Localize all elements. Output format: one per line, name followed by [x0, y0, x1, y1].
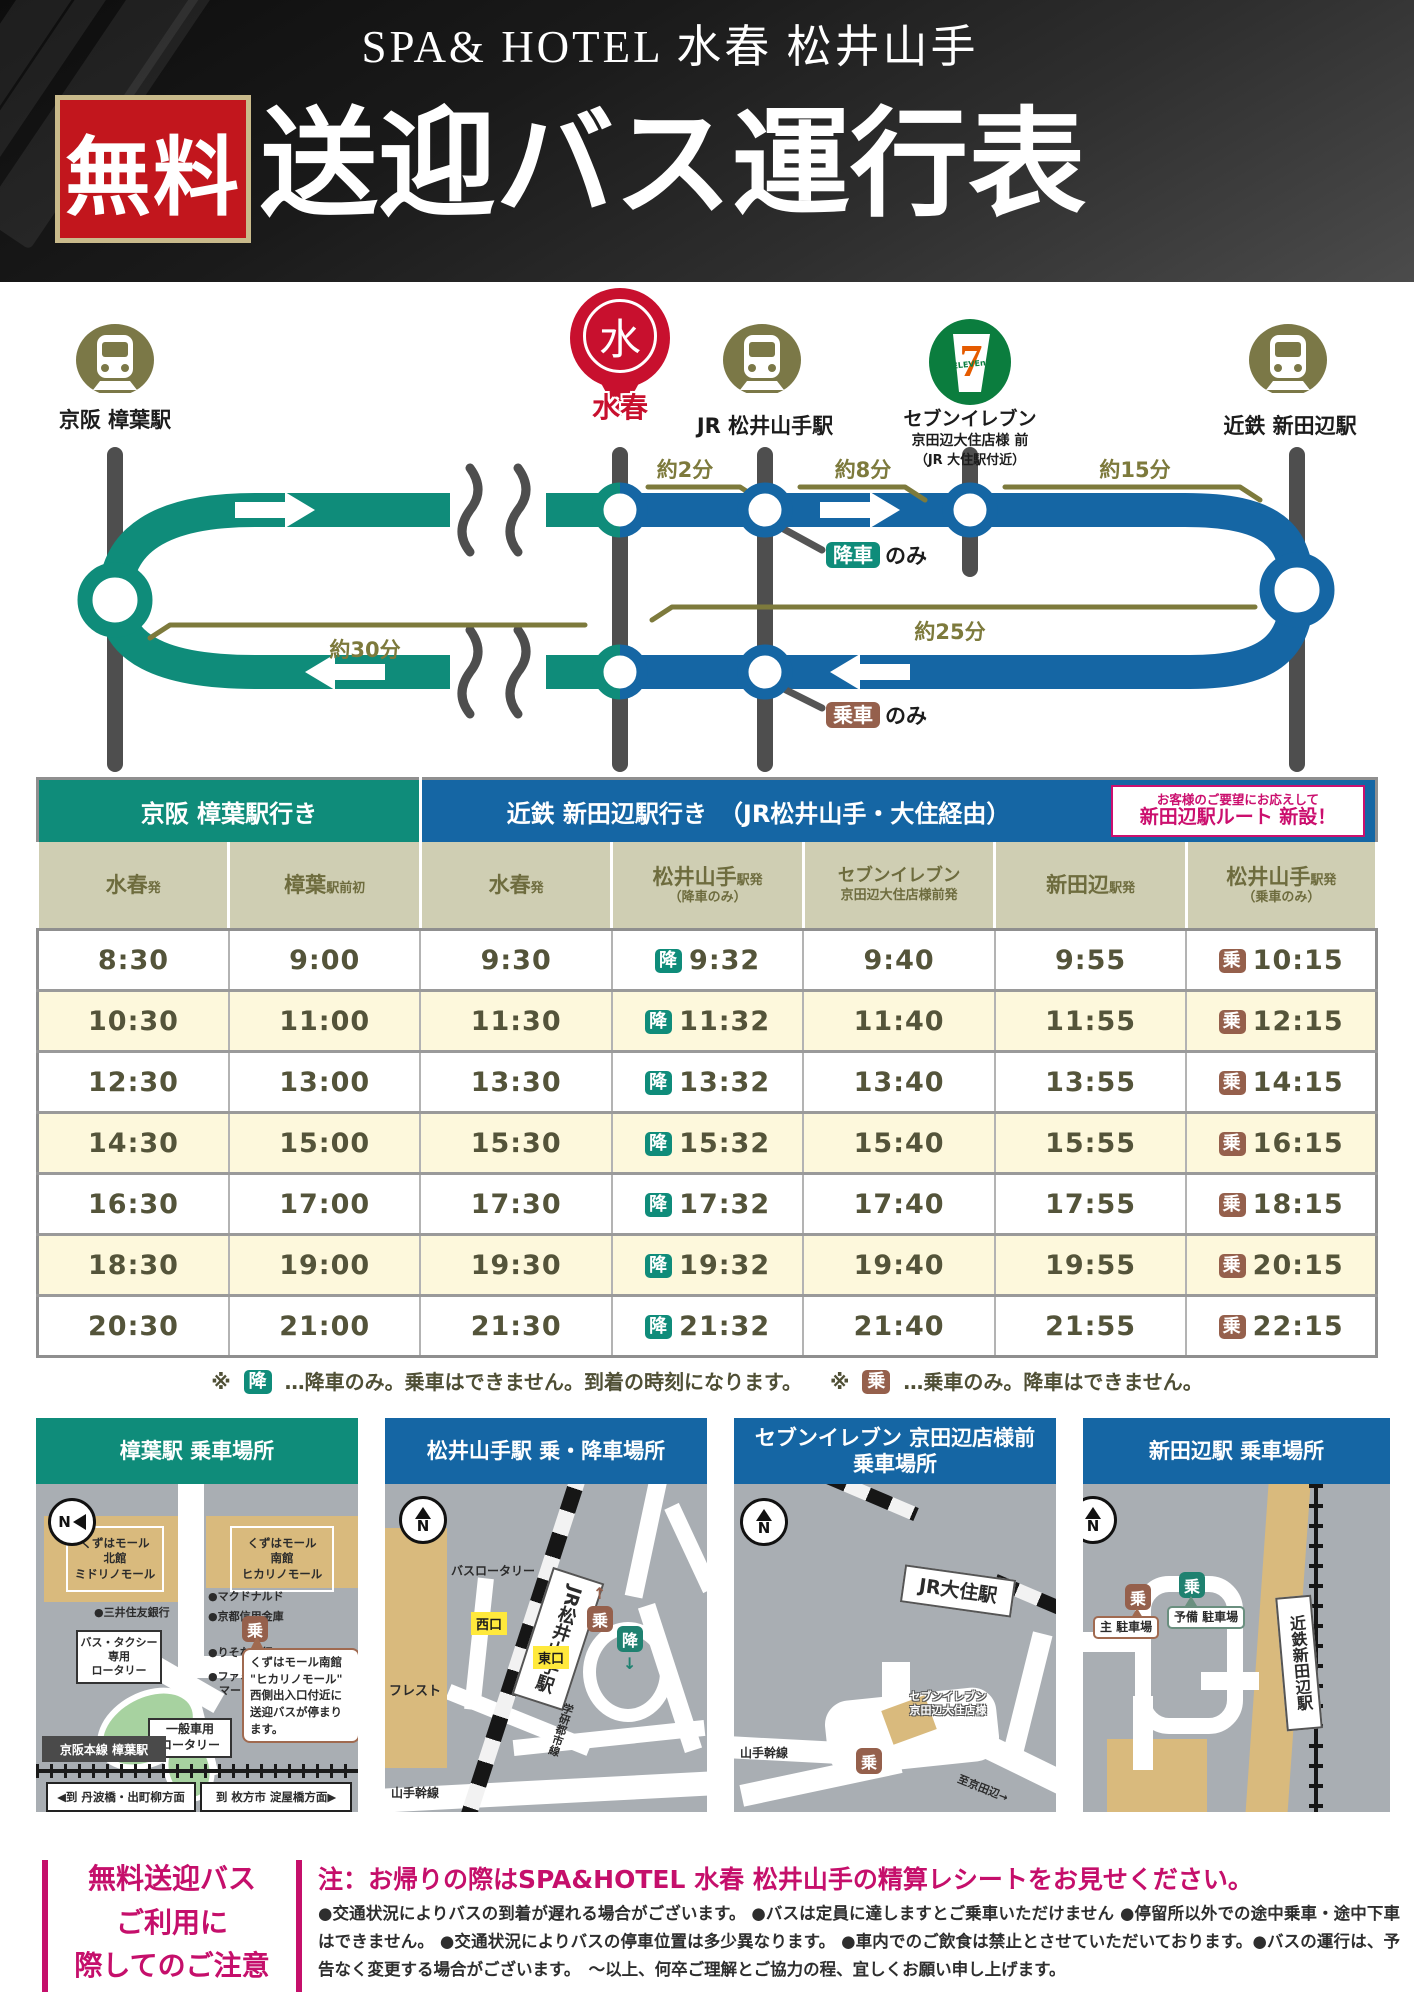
- duration-2min: 約2分: [630, 454, 740, 484]
- time-cell: 19:00: [229, 1235, 420, 1296]
- boarding-point-main-badge: 乗: [1125, 1584, 1151, 1610]
- free-badge: 無料: [55, 95, 251, 243]
- time-cell: 乗14:15: [1186, 1052, 1376, 1113]
- time-cell: 17:55: [995, 1174, 1186, 1235]
- time-cell: 乗16:15: [1186, 1113, 1376, 1174]
- time-cell: 降21:32: [612, 1296, 803, 1357]
- board-arrow-icon: ↑: [593, 1584, 606, 1603]
- map-kuzuha: 樟葉駅 乗車場所 N くずはモール 北館 ミドリノモール くずはモール 南館 ヒ…: [36, 1418, 358, 1812]
- timetable: 京阪 樟葉駅行き 近鉄 新田辺駅行き （JR松井山手・大住経由） お客様のご要望…: [36, 777, 1378, 1358]
- time-cell: 17:30: [420, 1174, 611, 1235]
- route-lines: [0, 282, 1414, 777]
- time-cell: 15:30: [420, 1113, 611, 1174]
- timetable-row: 14:3015:0015:30降15:3215:4015:55乗16:15: [38, 1113, 1377, 1174]
- time-cell: 13:40: [803, 1052, 994, 1113]
- drop-badge: 降: [655, 949, 682, 973]
- time-cell: 9:40: [803, 930, 994, 991]
- new-route-note-line2: 新田辺駅ルート 新設！: [1140, 807, 1337, 829]
- notice-left-title: 無料送迎バス ご利用に 際してのご注意: [50, 1857, 294, 1988]
- map-shintanabe-title: 新田辺駅 乗車場所: [1083, 1418, 1390, 1484]
- drop-badge: 降: [645, 1132, 672, 1156]
- map-seveneleven-body: N JR大住駅 山手幹線 セブンイレブン 京田辺大住店様 乗 至京田辺→: [734, 1484, 1056, 1812]
- notice-section: 無料送迎バス ご利用に 際してのご注意 注：お帰りの際はSPA&HOTEL 水春…: [0, 1845, 1414, 2000]
- poi-mitsui-bank: ●三井住友銀行: [94, 1606, 170, 1620]
- time-cell: 16:30: [38, 1174, 229, 1235]
- boarding-point-badge: 乗: [587, 1606, 613, 1632]
- time-cell: 乗22:15: [1186, 1296, 1376, 1357]
- west-exit-badge: 西口: [471, 1612, 507, 1635]
- time-cell: 19:40: [803, 1235, 994, 1296]
- time-cell: 20:30: [38, 1296, 229, 1357]
- time-cell: 15:55: [995, 1113, 1186, 1174]
- time-cell: 10:30: [38, 991, 229, 1052]
- time-cell: 15:40: [803, 1113, 994, 1174]
- duration-25min: 約25分: [890, 616, 1010, 646]
- notice-body: ●交通状況によりバスの到着が遅れる場合がございます。 ●バスは定員に達しますとご…: [318, 1900, 1400, 1984]
- board-badge: 乗: [1219, 1315, 1246, 1339]
- new-route-badge: お客様のご要望にお応えして 新田辺駅ルート 新設！: [1111, 785, 1365, 837]
- keihan-station-box: 京阪本線 樟葉駅: [42, 1736, 166, 1762]
- poster: SPA& HOTEL 水春 松井山手 無料 送迎バス運行表: [0, 0, 1414, 2000]
- timetable-row: 18:3019:0019:30降19:3219:4019:55乗20:15: [38, 1235, 1377, 1296]
- board-badge: 乗: [1219, 1132, 1246, 1156]
- legend-mark: ※: [211, 1370, 230, 1394]
- north-letter: N: [758, 1521, 771, 1536]
- station-label-seven: セブンイレブン: [880, 404, 1060, 431]
- boarding-point-badge: 乗: [856, 1748, 882, 1774]
- map-matsuiyamate-body: N フレスト バスロータリー JR松井山手駅 学研都市線 西口 東口 ↑ 乗 降…: [385, 1484, 707, 1812]
- building-block: [1107, 1739, 1207, 1812]
- time-cell: 降15:32: [612, 1113, 803, 1174]
- road: [464, 1578, 494, 1711]
- time-cell: 8:30: [38, 930, 229, 991]
- notice-bar-left: [42, 1860, 48, 1992]
- time-cell: 13:30: [420, 1052, 611, 1113]
- time-cell: 11:00: [229, 991, 420, 1052]
- north-compass: N: [48, 1498, 96, 1546]
- callout-pointer: [1131, 1608, 1143, 1618]
- road: [625, 1484, 668, 1599]
- time-cell: 13:00: [229, 1052, 420, 1113]
- time-cell: 19:30: [420, 1235, 611, 1296]
- time-cell: 降9:32: [612, 930, 803, 991]
- legend-board-badge: 乗: [862, 1370, 890, 1394]
- time-cell: 降13:32: [612, 1052, 803, 1113]
- time-cell: 21:00: [229, 1296, 420, 1357]
- road: [664, 1503, 707, 1593]
- route-diagram: 京阪 樟葉駅 水 水春 JR 松井山手駅 セブンイレブン 京田辺大住店様 前 （…: [0, 282, 1414, 777]
- callout-pointer: [250, 1636, 264, 1650]
- map-seveneleven-title: セブンイレブン 京田辺店様前 乗車場所: [734, 1418, 1056, 1484]
- time-cell: 降17:32: [612, 1174, 803, 1235]
- column-header-2: 水春発: [420, 842, 611, 930]
- station-label-kintetsu: 近鉄 新田辺駅: [1190, 410, 1390, 440]
- time-cell: 降11:32: [612, 991, 803, 1052]
- furesuto-building: [385, 1528, 447, 1768]
- column-header-1: 樟葉駅前初: [229, 842, 420, 930]
- dropoff-suffix: のみ: [885, 540, 927, 570]
- time-cell: 15:00: [229, 1113, 420, 1174]
- map-shintanabe-body: N 近鉄新田辺駅 乗 主 駐車場 乗 予備 駐車場: [1083, 1484, 1390, 1812]
- legend-drop-text: …降車のみ。乗車はできません。到着の時刻になります。: [285, 1370, 802, 1394]
- main-lot-callout: 主 駐車場: [1093, 1616, 1159, 1639]
- drop-badge: 降: [645, 1254, 672, 1278]
- north-compass: N: [740, 1498, 788, 1546]
- notice-bar-right: [296, 1860, 302, 1992]
- direction-sign-left: ◀到 丹波橋・出町柳方面: [46, 1782, 196, 1812]
- timetable-row: 16:3017:0017:30降17:3217:4017:55乗18:15: [38, 1174, 1377, 1235]
- notice-left-line1: 無料送迎バス: [50, 1857, 294, 1901]
- time-cell: 11:30: [420, 991, 611, 1052]
- time-cell: 21:40: [803, 1296, 994, 1357]
- drop-badge: 降: [645, 1193, 672, 1217]
- direction-header-shintanabe: 近鉄 新田辺駅行き （JR松井山手・大住経由） お客様のご要望にお応えして 新田…: [420, 779, 1376, 843]
- jr-osumi-station-label: JR大住駅: [900, 1564, 1016, 1617]
- reserve-lot-callout: 予備 駐車場: [1167, 1606, 1245, 1629]
- notice-headline: 注：お帰りの際はSPA&HOTEL 水春 松井山手の精算レシートをお見せください…: [318, 1860, 1403, 1896]
- poster-header: SPA& HOTEL 水春 松井山手 無料 送迎バス運行表: [0, 0, 1414, 282]
- time-cell: 12:30: [38, 1052, 229, 1113]
- west-pointer-icon: [73, 1514, 86, 1530]
- column-header-0: 水春発: [38, 842, 229, 930]
- time-cell: 乗10:15: [1186, 930, 1376, 991]
- time-cell: 9:30: [420, 930, 611, 991]
- page-title: 送迎バス運行表: [258, 68, 1088, 239]
- board-badge: 乗: [1219, 1010, 1246, 1034]
- train-icon: [1248, 324, 1328, 400]
- station-label-kuzuha: 京阪 樟葉駅: [15, 404, 215, 434]
- timetable-row: 8:309:009:30降9:329:409:55乗10:15: [38, 930, 1377, 991]
- direction-header-shintanabe-label: 近鉄 新田辺駅行き （JR松井山手・大住経由）: [507, 800, 1011, 828]
- road: [178, 1484, 204, 1660]
- time-cell: 乗20:15: [1186, 1235, 1376, 1296]
- board-badge: 乗: [1219, 1071, 1246, 1095]
- direction-sign-right: 到 枚方市 淀屋橋方面▶: [200, 1782, 352, 1812]
- time-cell: 19:55: [995, 1235, 1186, 1296]
- map-kuzuha-body: N くずはモール 北館 ミドリノモール くずはモール 南館 ヒカリノモール ●マ…: [36, 1484, 358, 1812]
- station-label-jr-matsuiyamate: JR 松井山手駅: [665, 410, 865, 440]
- time-cell: 14:30: [38, 1113, 229, 1174]
- time-cell: 21:55: [995, 1296, 1186, 1357]
- dropoff-only-note: 降車 のみ: [826, 540, 927, 570]
- station-label-suisyun: 水春: [570, 386, 670, 426]
- time-cell: 乗18:15: [1186, 1174, 1376, 1235]
- boarding-badge: 乗車: [826, 702, 880, 728]
- legend-mark-2: ※: [830, 1370, 849, 1394]
- time-cell: 17:40: [803, 1174, 994, 1235]
- boarding-suffix: のみ: [885, 700, 927, 730]
- to-kyotanabe-label: 至京田辺→: [955, 1773, 1010, 1806]
- legend-board-text: …乗車のみ。降車はできません。: [903, 1370, 1202, 1394]
- free-badge-label: 無料: [65, 107, 241, 232]
- mall-south-label: くずはモール 南館 ヒカリノモール: [230, 1526, 334, 1592]
- time-cell: 11:55: [995, 991, 1186, 1052]
- drop-badge: 降: [645, 1010, 672, 1034]
- north-letter: N: [1087, 1519, 1100, 1534]
- hotel-brand-title: SPA& HOTEL 水春 松井山手: [165, 10, 1175, 75]
- yamate-road-label: 山手幹線: [391, 1786, 439, 1802]
- map-seveneleven-title-line2: 乗車場所: [853, 1451, 937, 1477]
- suisyun-pin-icon: 水 水春: [570, 288, 670, 438]
- duration-30min: 約30分: [300, 634, 430, 664]
- column-header-6: 松井山手駅発（乗車のみ）: [1186, 842, 1376, 930]
- train-icon: [722, 324, 802, 400]
- time-cell: 21:30: [420, 1296, 611, 1357]
- north-compass: N: [1083, 1496, 1117, 1544]
- map-kuzuha-title: 樟葉駅 乗車場所: [36, 1418, 358, 1484]
- drop-badge: 降: [645, 1315, 672, 1339]
- time-cell: 9:55: [995, 930, 1186, 991]
- boarding-callout: くずはモール南館 "ヒカリノモール" 西側出入口付近に 送迎バスが停まり ます。: [242, 1648, 358, 1743]
- board-badge: 乗: [1219, 1193, 1246, 1217]
- column-header-row: 水春発樟葉駅前初水春発松井山手駅発（降車のみ）セブンイレブン京田辺大住店様前発新…: [38, 842, 1377, 930]
- time-cell: 13:55: [995, 1052, 1186, 1113]
- map-seveneleven: セブンイレブン 京田辺店様前 乗車場所 N JR大住駅 山手幹線 セブンイレブン…: [734, 1418, 1056, 1812]
- furesuto-label: フレスト: [385, 1684, 445, 1701]
- timetable-row: 10:3011:0011:30降11:3211:4011:55乗12:15: [38, 991, 1377, 1052]
- timetable-body: 8:309:009:30降9:329:409:55乗10:1510:3011:0…: [38, 930, 1377, 1357]
- board-badge: 乗: [1219, 949, 1246, 973]
- time-cell: 降19:32: [612, 1235, 803, 1296]
- column-header-4: セブンイレブン京田辺大住店様前発: [803, 842, 994, 930]
- seven-store-label: セブンイレブン 京田辺大住店様: [900, 1690, 996, 1719]
- legend-note: ※ 降 …降車のみ。乗車はできません。到着の時刻になります。 ※ 乗 …乗車のみ…: [0, 1366, 1414, 1395]
- bus-rotary-label: バスロータリー: [451, 1564, 535, 1580]
- suisyun-mark: 水: [583, 299, 657, 373]
- road: [1201, 1672, 1259, 1690]
- railway-band: [821, 1484, 919, 1521]
- timetable-row: 12:3013:0013:30降13:3213:4013:55乗14:15: [38, 1052, 1377, 1113]
- map-matsuiyamate: 松井山手駅 乗・降車場所 N フレスト バスロータリー JR松井山手駅 学研都市…: [385, 1418, 707, 1812]
- notice-left-line3: 際してのご注意: [50, 1944, 294, 1988]
- north-compass: N: [399, 1496, 447, 1544]
- train-icon: [75, 324, 155, 400]
- notice-left-line2: ご利用に: [50, 1901, 294, 1945]
- north-letter: N: [417, 1519, 430, 1534]
- direction-header-kuzuha: 京阪 樟葉駅行き: [38, 779, 421, 843]
- board-badge: 乗: [1219, 1254, 1246, 1278]
- dropoff-point-badge: 降: [617, 1626, 643, 1652]
- road: [1133, 1696, 1153, 1770]
- station-sublabel-seven: 京田辺大住店様 前: [880, 430, 1060, 450]
- callout-pointer: [1185, 1596, 1197, 1606]
- yamate-road-label: 山手幹線: [740, 1746, 788, 1762]
- map-matsuiyamate-title: 松井山手駅 乗・降車場所: [385, 1418, 707, 1484]
- drop-arrow-icon: ↓: [623, 1654, 636, 1673]
- dropoff-badge: 降車: [826, 542, 880, 568]
- road: [1004, 1631, 1053, 1754]
- column-header-5: 新田辺駅発: [995, 842, 1186, 930]
- boarding-only-note: 乗車 のみ: [826, 700, 927, 730]
- railway-track: [36, 1764, 358, 1778]
- legend-drop-badge: 降: [244, 1370, 272, 1394]
- time-cell: 18:30: [38, 1235, 229, 1296]
- duration-8min: 約8分: [808, 454, 918, 484]
- time-cell: 17:00: [229, 1174, 420, 1235]
- bus-taxi-rotary-label: バス・タクシー 専用 ロータリー: [76, 1630, 162, 1684]
- seven-eleven-icon: [928, 318, 1012, 406]
- time-cell: 9:00: [229, 930, 420, 991]
- time-cell: 乗12:15: [1186, 991, 1376, 1052]
- map-shintanabe: 新田辺駅 乗車場所 N 近鉄新田辺駅 乗 主 駐車場 乗 予備 駐車場: [1083, 1418, 1390, 1812]
- drop-badge: 降: [645, 1071, 672, 1095]
- boarding-point-reserve-badge: 乗: [1179, 1572, 1205, 1598]
- poi-mcdonalds: ●マクドナルド: [208, 1590, 284, 1604]
- north-letter: N: [58, 1513, 71, 1531]
- timetable-row: 20:3021:0021:30降21:3221:4021:55乗22:15: [38, 1296, 1377, 1357]
- east-exit-badge: 東口: [533, 1646, 569, 1669]
- map-seveneleven-title-line1: セブンイレブン 京田辺店様前: [755, 1425, 1035, 1451]
- time-cell: 11:40: [803, 991, 994, 1052]
- column-header-3: 松井山手駅発（降車のみ）: [612, 842, 803, 930]
- duration-15min: 約15分: [1060, 454, 1210, 484]
